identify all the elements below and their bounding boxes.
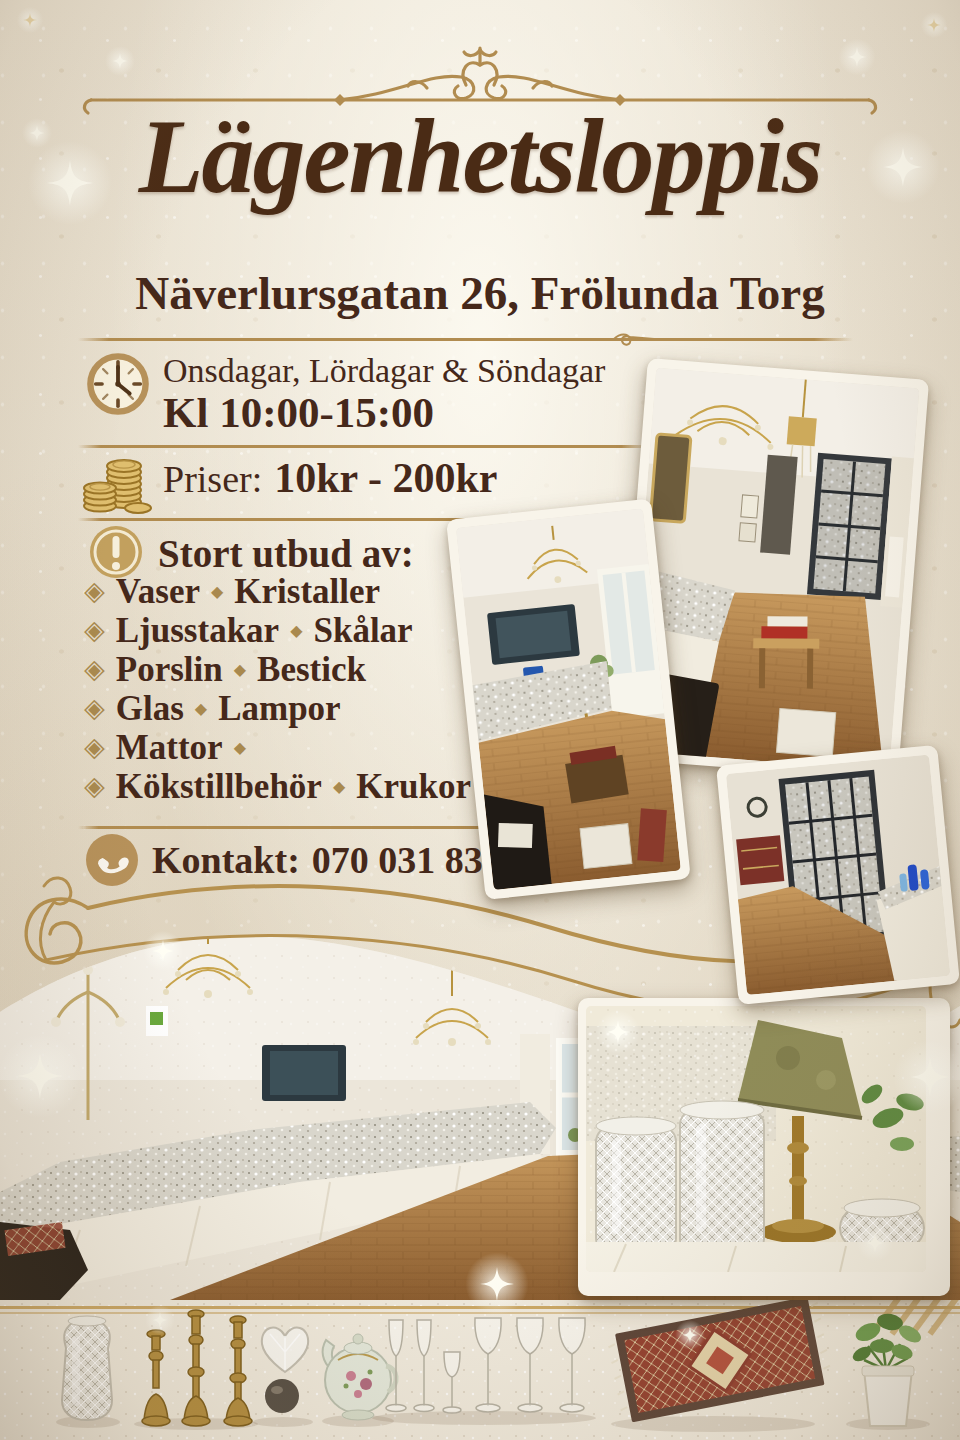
assortment-item: ◈ Porslin ◆ Bestick <box>84 650 484 689</box>
prices-label: Priser: <box>163 457 262 501</box>
diamond-bullet-icon: ◈ <box>84 617 105 644</box>
contact-label: Kontakt: <box>152 838 300 882</box>
crystal-closeup-photo <box>578 998 950 1296</box>
prices-row: Priser: 10kr - 200kr <box>163 454 497 502</box>
page-title: Lägenhetsloppis <box>0 96 960 218</box>
schedule-days: Onsdagar, Lördagar & Söndagar <box>163 352 605 390</box>
phone-icon <box>84 832 140 888</box>
flyer: Lägenhetsloppis Näverlursgatan 26, Frölu… <box>0 0 960 1440</box>
sale-items-strip-photo <box>0 1300 960 1440</box>
schedule-hours: Kl 10:00-15:00 <box>163 388 434 437</box>
crystal-vase <box>62 1316 112 1420</box>
divider <box>78 445 650 448</box>
sale-items-scene <box>0 1300 960 1440</box>
diamond-bullet-icon: ◈ <box>84 695 105 722</box>
diamond-bullet-icon: ◈ <box>84 734 105 761</box>
assortment-item: ◈ Kökstillbehör ◆ Krukor <box>84 767 484 806</box>
room-photo-middle-left <box>446 498 691 899</box>
divider-curl-ornament <box>612 330 656 348</box>
diamond-separator-icon: ◆ <box>290 623 302 639</box>
contact-row: Kontakt: 070 031 83 46 <box>152 832 530 888</box>
clock-icon <box>84 350 152 418</box>
sparkle-icon <box>927 18 941 32</box>
diamond-bullet-icon: ◈ <box>84 656 105 683</box>
room-photo-bottom-right <box>716 745 960 1005</box>
prices-value: 10kr - 200kr <box>274 454 497 502</box>
diamond-separator-icon: ◆ <box>211 584 223 600</box>
diamond-separator-icon: ◆ <box>333 779 345 795</box>
assortment-item: ◈ Ljusstakar ◆ Skålar <box>84 611 484 650</box>
assortment-list: ◈ Vaser ◆ Kristaller ◈ Ljusstakar ◆ Skål… <box>84 572 484 806</box>
assortment-item: ◈ Mattor ◆ <box>84 728 484 767</box>
divider <box>78 338 853 341</box>
diamond-bullet-icon: ◈ <box>84 773 105 800</box>
crystal-scene <box>586 1006 926 1272</box>
diamond-separator-icon: ◆ <box>195 701 207 717</box>
room-scene-3 <box>726 755 950 996</box>
diamond-bullet-icon: ◈ <box>84 578 105 605</box>
sparkle-icon <box>23 13 37 27</box>
assortment-item: ◈ Vaser ◆ Kristaller <box>84 572 484 611</box>
diamond-separator-icon: ◆ <box>234 662 246 678</box>
address-line: Näverlursgatan 26, Frölunda Torg <box>0 266 960 320</box>
room-scene-2 <box>456 508 681 890</box>
diamond-separator-icon: ◆ <box>234 740 246 756</box>
coins-icon <box>80 450 154 516</box>
assortment-item: ◈ Glas ◆ Lampor <box>84 689 484 728</box>
